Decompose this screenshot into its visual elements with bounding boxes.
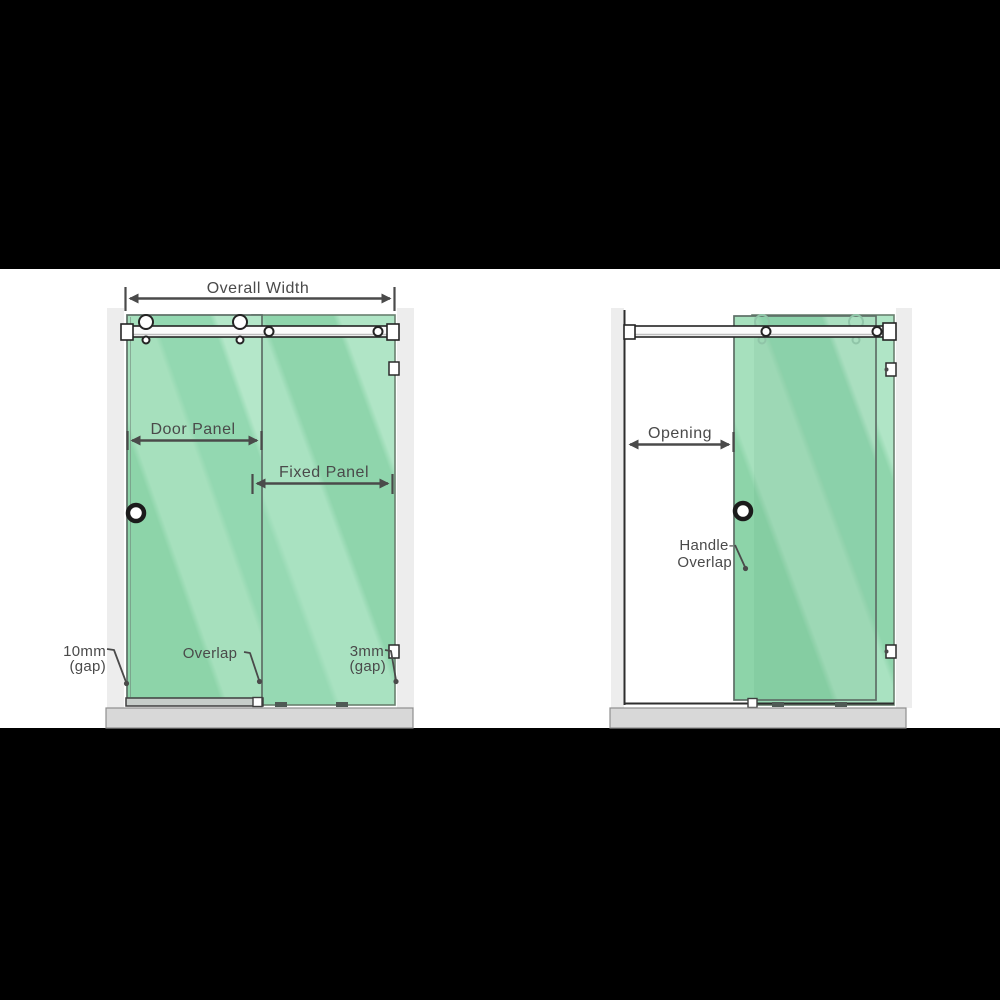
rail-mount-icon	[873, 327, 882, 336]
fixed-panel-bottom-clamp	[835, 702, 847, 707]
gap-3mm-unit: (gap)	[349, 658, 386, 675]
top-rail	[124, 326, 397, 337]
overlap-strip	[754, 317, 875, 699]
left-wall	[107, 308, 124, 708]
bottom-guide-block	[253, 698, 262, 707]
fixed-panel-label: Fixed Panel	[279, 464, 369, 481]
rail-end-cap-right	[883, 323, 896, 340]
shower-screen-diagram: Overall Width Door Panel Fixed Panel 10m…	[0, 0, 1000, 1000]
rail-end-cap-left	[121, 324, 133, 340]
left-wall	[611, 308, 624, 708]
fixed-panel-bottom-clamp	[275, 702, 287, 707]
leader-dot	[124, 681, 129, 686]
door-bottom-guide	[126, 698, 263, 706]
fixed-panel-bottom-clamp	[772, 702, 784, 707]
wall-clamp	[389, 362, 399, 375]
leader-dot	[743, 566, 748, 571]
handle-overlap-line1: Handle-	[679, 537, 734, 554]
wall-clamp-pin	[885, 368, 889, 372]
door-panel-label: Door Panel	[150, 421, 235, 438]
dimension-opening: Opening	[630, 425, 734, 452]
dimension-overall-width: Overall Width	[126, 280, 395, 311]
opening-label: Opening	[648, 425, 712, 442]
leader-dot	[393, 679, 398, 684]
door-handle-icon	[128, 505, 144, 521]
handle-overlap-line2: Overlap	[677, 554, 732, 571]
leader-dot	[257, 679, 262, 684]
rail-mount-icon	[374, 327, 383, 336]
overall-width-label: Overall Width	[207, 280, 310, 297]
right-diagram: Opening Handle- Overlap	[610, 308, 912, 728]
roller-icon	[233, 315, 247, 329]
floor-tray	[610, 708, 906, 728]
rail-mount-icon	[762, 327, 771, 336]
door-panel-glass	[127, 315, 262, 699]
rail-end-cap-left	[624, 325, 635, 339]
door-handle-icon	[735, 503, 751, 519]
floor-tray	[106, 708, 413, 728]
bottom-guide-block	[748, 699, 757, 708]
overlap-label: Overlap	[183, 645, 238, 662]
rail-end-cap-right	[387, 324, 399, 340]
roller-stopper-icon	[237, 337, 244, 344]
wall-clamp-pin	[885, 650, 889, 654]
top-rail	[626, 326, 884, 337]
right-wall	[896, 308, 912, 708]
fixed-panel-bottom-clamp	[336, 702, 348, 707]
left-diagram: Overall Width Door Panel Fixed Panel 10m…	[63, 280, 414, 728]
roller-icon	[139, 315, 153, 329]
roller-stopper-icon	[143, 337, 150, 344]
gap-10mm-unit: (gap)	[69, 658, 106, 675]
rail-mount-icon	[265, 327, 274, 336]
